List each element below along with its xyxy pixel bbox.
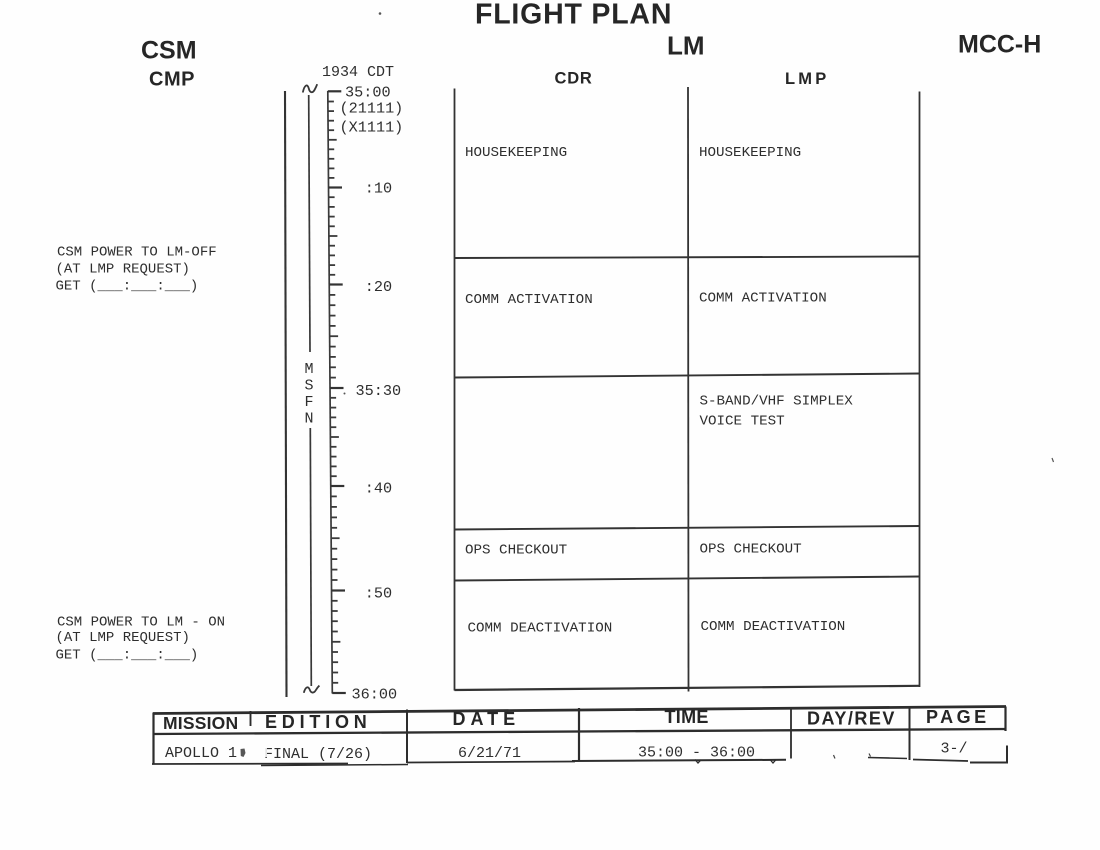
svg-text:COMM ACTIVATION: COMM ACTIVATION: [465, 292, 593, 308]
svg-text:LM: LM: [667, 31, 705, 61]
svg-text:(AT LMP REQUEST): (AT LMP REQUEST): [56, 262, 190, 278]
svg-text:CSM POWER TO LM - ON: CSM POWER TO LM - ON: [57, 615, 225, 631]
svg-text::40: :40: [365, 479, 392, 497]
svg-text:COMM DEACTIVATION: COMM DEACTIVATION: [468, 621, 613, 637]
svg-text:CSM POWER TO LM-OFF: CSM POWER TO LM-OFF: [57, 245, 217, 261]
svg-text:COMM DEACTIVATION: COMM DEACTIVATION: [701, 619, 846, 635]
svg-text:35:30: 35:30: [356, 382, 402, 400]
svg-text:1934 CDT: 1934 CDT: [322, 64, 394, 81]
svg-text:S-BAND/VHF SIMPLEX: S-BAND/VHF SIMPLEX: [700, 394, 854, 410]
svg-text:FINAL (7/26): FINAL (7/26): [264, 746, 372, 763]
svg-text:APOLLO 1: APOLLO 1: [165, 745, 237, 762]
svg-text:FLIGHT PLAN: FLIGHT PLAN: [475, 0, 672, 31]
svg-text:COMM ACTIVATION: COMM ACTIVATION: [699, 291, 827, 307]
svg-text:CMP: CMP: [149, 69, 195, 91]
svg-text:LMP: LMP: [785, 70, 829, 88]
svg-text:(X1111): (X1111): [340, 119, 404, 137]
svg-text:(AT LMP REQUEST): (AT LMP REQUEST): [56, 630, 190, 646]
svg-text:OPS CHECKOUT: OPS CHECKOUT: [465, 543, 567, 559]
svg-text::50: :50: [365, 584, 392, 602]
svg-text:F: F: [305, 394, 314, 411]
svg-text:TIME: TIME: [665, 707, 709, 727]
svg-text:MCC-H: MCC-H: [958, 31, 1041, 59]
svg-text:VOICE TEST: VOICE TEST: [700, 414, 785, 430]
svg-text:MISSION: MISSION: [163, 713, 238, 733]
svg-text:S: S: [305, 378, 314, 395]
svg-text:36:00: 36:00: [352, 686, 398, 704]
svg-text:(21111): (21111): [340, 100, 404, 118]
svg-text:M: M: [305, 361, 314, 378]
svg-text::20: :20: [365, 278, 392, 296]
svg-text:GET (___:___:___): GET (___:___:___): [56, 648, 199, 664]
svg-text:6/21/71: 6/21/71: [458, 745, 521, 762]
svg-text:3-/: 3-/: [941, 741, 968, 758]
svg-text:HOUSEKEEPING: HOUSEKEEPING: [465, 145, 567, 161]
svg-text:EDITION: EDITION: [265, 712, 372, 732]
svg-text:DATE: DATE: [453, 709, 521, 729]
svg-text:HOUSEKEEPING: HOUSEKEEPING: [699, 145, 801, 161]
svg-text::10: :10: [365, 179, 392, 197]
svg-text:CDR: CDR: [555, 70, 593, 88]
svg-text:CSM: CSM: [141, 37, 197, 65]
svg-text:N: N: [305, 411, 314, 428]
svg-text:PAGE: PAGE: [926, 707, 990, 727]
svg-text:35:00 - 36:00: 35:00 - 36:00: [638, 745, 755, 762]
svg-text:DAY/REV: DAY/REV: [807, 709, 896, 729]
svg-text:GET (___:___:___): GET (___:___:___): [56, 279, 199, 295]
svg-text:OPS CHECKOUT: OPS CHECKOUT: [700, 542, 802, 558]
